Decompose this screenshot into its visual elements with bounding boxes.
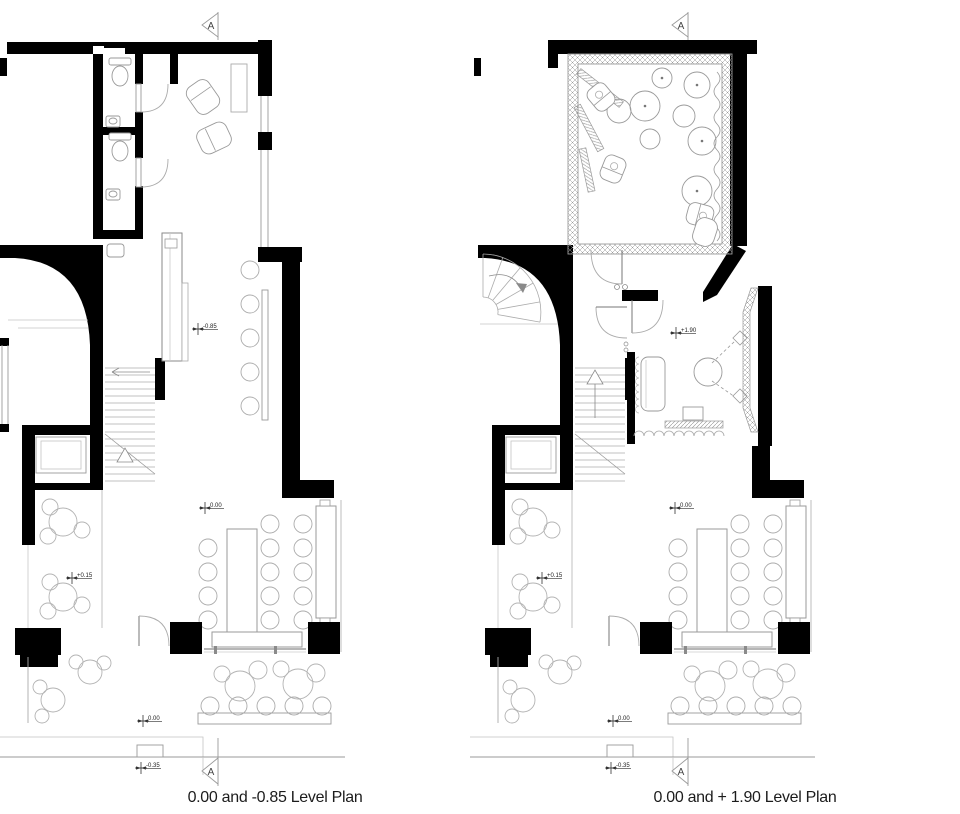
upper-terrace-room <box>568 54 732 290</box>
door-leaf <box>136 84 141 112</box>
level-marker-main-left: 0.00 <box>199 502 224 514</box>
section-letter: A <box>678 21 685 32</box>
svg-text:+0.15: +0.15 <box>547 573 563 579</box>
svg-text:0.00: 0.00 <box>210 503 222 509</box>
section-marker-top-left: A <box>202 12 218 40</box>
svg-text:0.00: 0.00 <box>680 503 692 509</box>
level-marker-upper-left: -0.85 <box>192 323 218 335</box>
stair-arrow-icon <box>587 370 603 384</box>
radiator <box>665 421 723 428</box>
caption-left: 0.00 and -0.85 Level Plan <box>188 789 363 806</box>
curved-wall <box>0 245 103 345</box>
music-room <box>596 288 758 436</box>
caption-right: 0.00 and + 1.90 Level Plan <box>653 789 836 806</box>
svg-text:+1.90: +1.90 <box>681 328 697 334</box>
staircase-left-plan <box>105 368 155 481</box>
stair-arrow-icon <box>117 448 133 462</box>
level-marker-outdoor-right: 0.00 <box>607 715 632 727</box>
svg-text:-0.85: -0.85 <box>203 324 217 330</box>
plan-right: A <box>470 12 837 806</box>
svg-text:0.00: 0.00 <box>618 716 630 722</box>
door-leaf <box>136 158 141 187</box>
round-table <box>694 358 722 386</box>
curved-wall <box>478 245 573 345</box>
level-marker-upper-right: +1.90 <box>670 327 697 339</box>
walls-left-plan <box>0 40 302 490</box>
section-marker-bottom-right: A <box>672 738 688 786</box>
level-marker-terrace-right: +0.15 <box>536 572 563 584</box>
section-letter: A <box>208 21 215 32</box>
plant-edge <box>634 431 724 436</box>
curtain-line <box>714 72 720 241</box>
staircase-right-plan <box>575 368 625 481</box>
level-marker-outdoor-left: 0.00 <box>137 715 162 727</box>
svg-text:-0.35: -0.35 <box>616 763 630 769</box>
svg-text:-0.35: -0.35 <box>146 763 160 769</box>
section-letter: A <box>678 767 685 778</box>
stair-arrow-icon <box>516 283 527 293</box>
level-marker-main-right: 0.00 <box>669 502 694 514</box>
bar-counter <box>162 233 182 361</box>
svg-text:0.00: 0.00 <box>148 716 160 722</box>
svg-text:+0.15: +0.15 <box>77 573 93 579</box>
canopy-lines <box>8 320 88 328</box>
office-room-furniture <box>107 64 268 420</box>
window-bench <box>262 290 268 420</box>
level-marker-street-right: -0.35 <box>605 762 631 774</box>
section-marker-top-right: A <box>672 12 688 40</box>
table-dots <box>644 77 704 193</box>
level-marker-terrace-left: +0.15 <box>66 572 93 584</box>
section-marker-bottom-left: A <box>202 738 218 786</box>
bay-window-band <box>743 288 758 432</box>
section-letter: A <box>208 767 215 778</box>
plan-left: A <box>0 12 362 806</box>
drawing-canvas: A <box>0 0 960 814</box>
level-marker-street-left: -0.35 <box>135 762 161 774</box>
desk <box>683 407 703 420</box>
daybed <box>641 357 665 411</box>
round-tables <box>607 68 716 206</box>
